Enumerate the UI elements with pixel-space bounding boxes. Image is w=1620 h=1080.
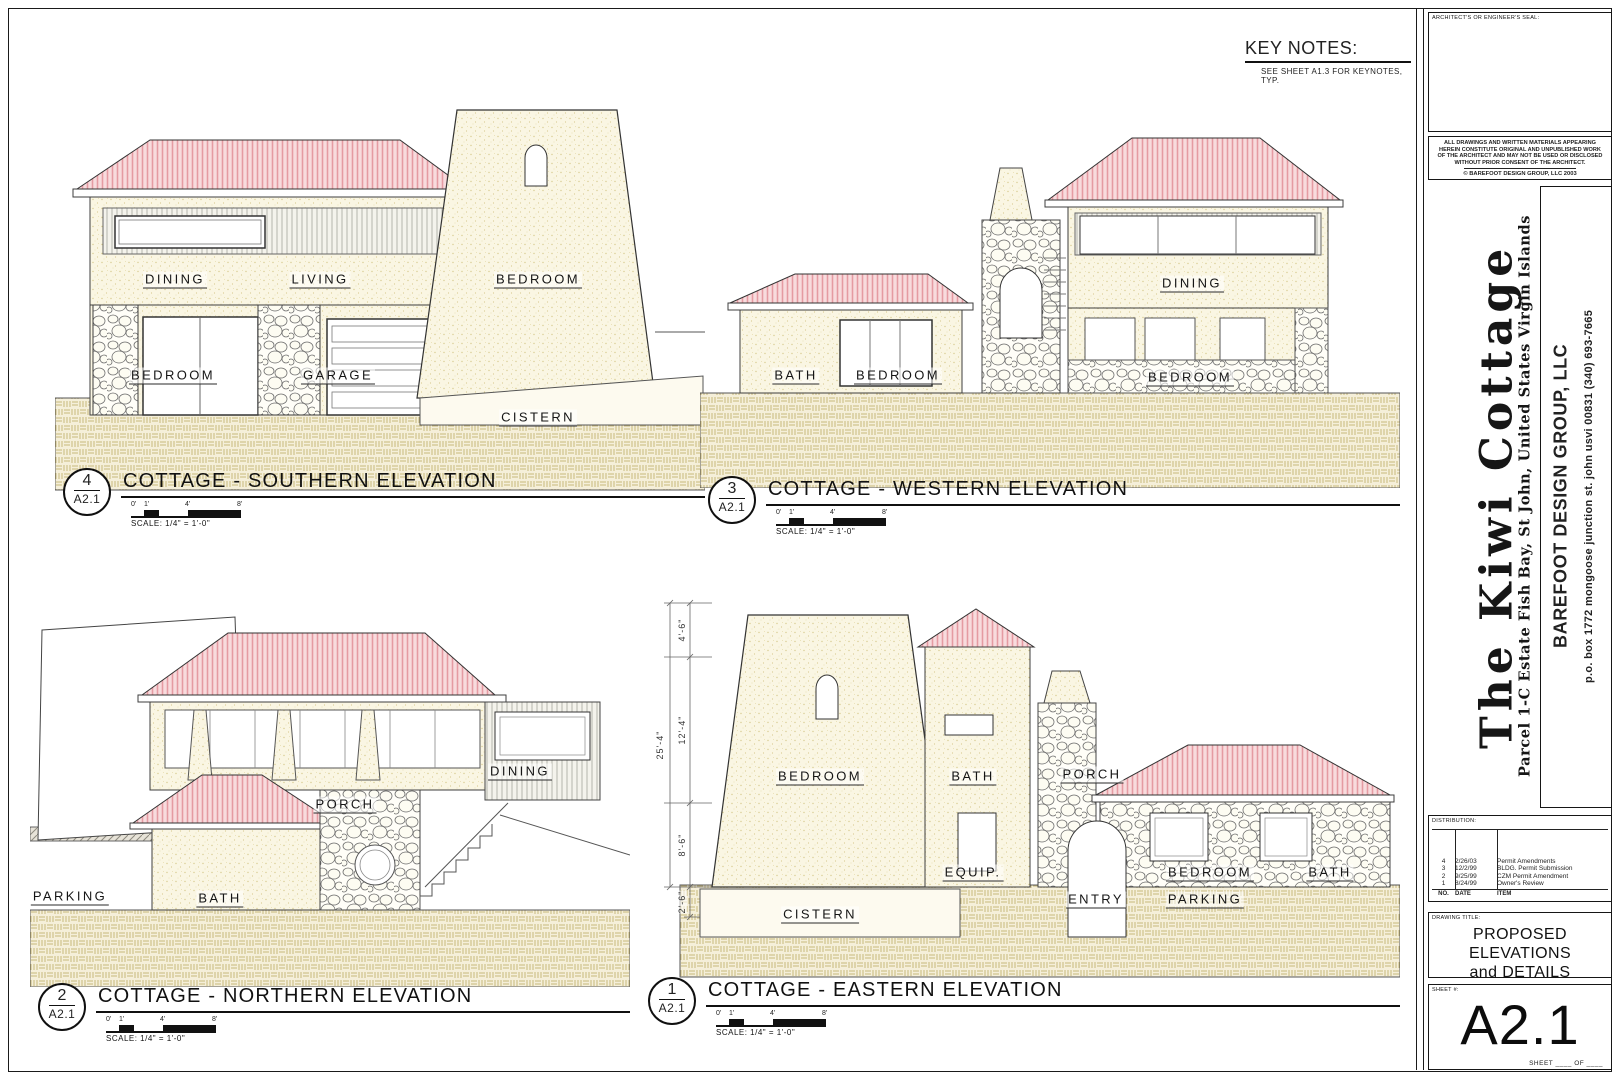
dim-segment: 2'-6": [677, 891, 687, 914]
scale-note: SCALE: 1/4" = 1'-0": [776, 527, 1400, 536]
firm-address: p.o. box 1772 mongoose junction st. john…: [1576, 188, 1602, 804]
ground-hatch: [30, 910, 630, 987]
distribution-row: 312/2/99BLDG. Permit Submission: [1432, 865, 1608, 873]
arched-window: [525, 145, 547, 186]
scale-bar-ticks: 0'1' 4'8': [716, 1010, 836, 1019]
firm-name: BAREFOOT DESIGN GROUP, LLC: [1546, 188, 1576, 804]
room-label-dining: DINING: [488, 764, 552, 781]
detail-number: 4: [74, 470, 101, 491]
room-label-bath: BATH: [949, 769, 996, 786]
distribution-row: 29/25/99CZM Permit Amendment: [1432, 873, 1608, 881]
room-label-bath: BATH: [772, 368, 819, 385]
southern-elevation-drawing: [55, 80, 705, 510]
room-label-bedroom: BEDROOM: [776, 769, 864, 786]
scale-note: SCALE: 1/4" = 1'-0": [716, 1028, 1400, 1037]
scale-note: SCALE: 1/4" = 1'-0": [106, 1034, 630, 1043]
room-label-living: LIVING: [289, 272, 350, 289]
detail-callout-icon: 4 A2.1: [63, 468, 111, 516]
room-label-parking: PARKING: [1166, 892, 1244, 909]
dim-segment: 12'-4": [677, 716, 687, 745]
scale-note: SCALE: 1/4" = 1'-0": [131, 519, 705, 528]
scale-bar: [106, 1025, 216, 1033]
legal-text: ALL DRAWINGS AND WRITTEN MATERIALS APPEA…: [1435, 140, 1605, 166]
entry-arch: [1068, 821, 1126, 937]
scale-bar-ticks: 0'1' 4'8': [106, 1016, 226, 1025]
room-label-garage: GARAGE: [301, 368, 375, 385]
distribution-box: DISTRIBUTION: 42/26/03Permit Amendments …: [1428, 815, 1612, 902]
key-notes: KEY NOTES: SEE SHEET A1.3 FOR KEYNOTES, …: [1245, 38, 1411, 85]
room-label-bath: BATH: [196, 891, 243, 908]
room-label-bath: BATH: [1306, 865, 1353, 882]
distribution-label: DISTRIBUTION:: [1432, 818, 1611, 824]
detail-sheet-ref: A2.1: [74, 491, 101, 508]
key-notes-title: KEY NOTES:: [1245, 38, 1411, 63]
detail-sheet-ref: A2.1: [49, 1006, 76, 1023]
room-label-dining: DINING: [1160, 276, 1224, 293]
shed-roof: [918, 609, 1034, 647]
divider: [1464, 168, 1577, 169]
copyright-notice-box: ALL DRAWINGS AND WRITTEN MATERIALS APPEA…: [1428, 136, 1612, 180]
room-label-bedroom: BEDROOM: [1166, 865, 1254, 882]
stairs: [420, 824, 492, 910]
elevation-title-northern: 2 A2.1 COTTAGE - NORTHERN ELEVATION 0'1'…: [38, 983, 630, 1043]
detail-number: 2: [49, 985, 76, 1006]
elevation-northern: PORCH DINING BATH PARKING 2 A2.1 COTTAGE…: [30, 555, 630, 1045]
tower: [712, 615, 945, 887]
distribution-footer: NO.DATEITEM: [1432, 889, 1608, 899]
room-label-porch: PORCH: [1061, 767, 1124, 784]
elevation-title-text: COTTAGE - WESTERN ELEVATION: [768, 478, 1128, 500]
project-location: Parcel 1-C Estate Fish Bay, St John, Uni…: [1514, 188, 1536, 804]
detail-callout-icon: 3 A2.1: [708, 476, 756, 524]
equip-door: [958, 813, 996, 871]
elevation-title-eastern: 1 A2.1 COTTAGE - EASTERN ELEVATION 0'1' …: [648, 977, 1400, 1037]
room-label-bedroom: BEDROOM: [494, 272, 582, 289]
scale-bar: [776, 518, 886, 526]
title-strip-divider: [1416, 8, 1417, 1070]
room-label-cistern: CISTERN: [499, 410, 577, 427]
elevation-title-text: COTTAGE - SOUTHERN ELEVATION: [123, 470, 497, 492]
drawing-title-label: DRAWING TITLE:: [1432, 915, 1611, 921]
key-notes-text: SEE SHEET A1.3 FOR KEYNOTES, TYP.: [1261, 67, 1411, 85]
room-label-dining: DINING: [143, 272, 207, 289]
dim-segment: 8'-6": [677, 834, 687, 857]
stone-pier: [93, 305, 138, 415]
room-label-cistern: CISTERN: [781, 907, 859, 924]
detail-callout-icon: 1 A2.1: [648, 977, 696, 1025]
detail-sheet-ref: A2.1: [659, 1000, 686, 1017]
scale-bar-ticks: 0'1' 4'8': [131, 501, 251, 510]
room-label-bedroom: BEDROOM: [1146, 370, 1234, 387]
distribution-row: 42/26/03Permit Amendments: [1432, 858, 1608, 866]
seal-label: ARCHITECT'S OR ENGINEER'S SEAL:: [1432, 15, 1611, 21]
dimension-lines: [664, 600, 712, 920]
wing-roof: [1096, 745, 1390, 795]
room-label-bedroom: BEDROOM: [129, 368, 217, 385]
room-label-entry: ENTRY: [1066, 892, 1126, 909]
distribution-row: 18/24/99Owner's Review: [1432, 880, 1608, 888]
ground-hatch: [700, 393, 1400, 488]
wing-roof: [730, 274, 968, 303]
main-roof: [1048, 138, 1340, 200]
drawing-sheet: { "colors": { "roof_pink": "#e59ba2", "r…: [0, 0, 1620, 1080]
elevation-title-text: COTTAGE - NORTHERN ELEVATION: [98, 985, 472, 1007]
room-label-equip: EQUIP.: [943, 865, 1004, 882]
eastern-elevation-drawing: [640, 585, 1400, 980]
dim-segment: 4'-6": [677, 619, 687, 642]
sheet-of-line: SHEET ____ OF ____: [1529, 1060, 1603, 1067]
sheet-number: A2.1: [1429, 997, 1611, 1053]
room-label-porch: PORCH: [314, 797, 377, 814]
drawing-title-box: DRAWING TITLE: PROPOSED ELEVATIONS and D…: [1428, 912, 1612, 978]
detail-number: 3: [719, 478, 746, 499]
sheet-number-box: SHEET #: A2.1 SHEET ____ OF ____: [1428, 984, 1612, 1070]
porthole-window: [355, 845, 395, 885]
detail-sheet-ref: A2.1: [719, 499, 746, 516]
divider: [1432, 829, 1608, 830]
elevation-eastern: 25'-4" 4'-6" 12'-4" 8'-6" 2'-6" BEDROOM …: [640, 585, 1400, 1045]
room-label-bedroom: BEDROOM: [854, 368, 942, 385]
scale-bar-ticks: 0'1' 4'8': [776, 509, 896, 518]
dim-overall: 25'-4": [655, 731, 665, 760]
elevation-title-text: COTTAGE - EASTERN ELEVATION: [708, 979, 1063, 1001]
room-label-parking: PARKING: [31, 889, 109, 906]
detail-callout-icon: 2 A2.1: [38, 983, 86, 1031]
elevation-western: DINING BATH BEDROOM BEDROOM 3 A2.1 COTTA…: [700, 108, 1400, 538]
arch-opening: [1000, 268, 1042, 338]
elevation-title-western: 3 A2.1 COTTAGE - WESTERN ELEVATION 0'1' …: [708, 476, 1400, 536]
distribution-rows: 42/26/03Permit Amendments 312/2/99BLDG. …: [1432, 858, 1608, 888]
elevation-title-southern: 4 A2.1 COTTAGE - SOUTHERN ELEVATION 0'1'…: [63, 468, 705, 528]
scale-bar: [131, 510, 241, 518]
architect-seal-box: ARCHITECT'S OR ENGINEER'S SEAL:: [1428, 12, 1612, 132]
arched-window: [816, 675, 838, 719]
detail-number: 1: [659, 979, 686, 1000]
copyright-line: © BAREFOOT DESIGN GROUP, LLC 2003: [1429, 171, 1611, 177]
title-strip-divider-inner: [1423, 8, 1424, 1070]
elevation-southern: DINING LIVING BEDROOM BEDROOM GARAGE CIS…: [55, 80, 705, 535]
main-roof: [77, 140, 467, 189]
western-elevation-drawing: [700, 108, 1400, 488]
drawing-title: PROPOSED ELEVATIONS and DETAILS: [1455, 925, 1585, 982]
scale-bar: [716, 1019, 826, 1027]
